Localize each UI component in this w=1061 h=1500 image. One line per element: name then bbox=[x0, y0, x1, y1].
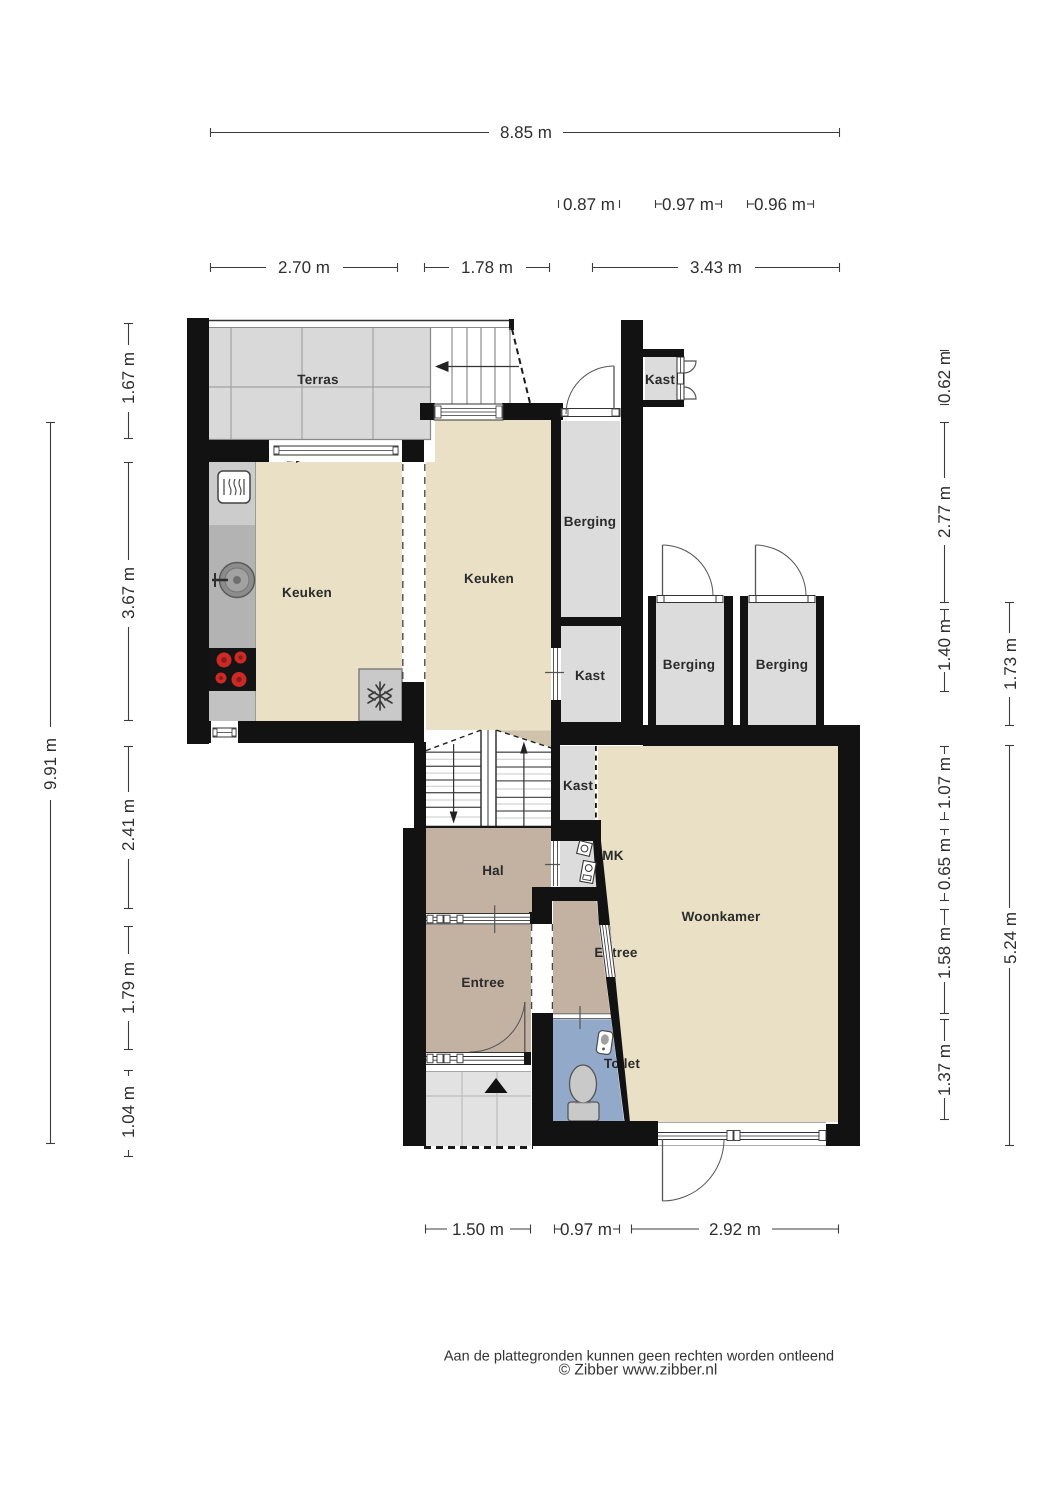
svg-text:Kast: Kast bbox=[575, 668, 605, 683]
svg-text:0.65 m: 0.65 m bbox=[935, 838, 954, 890]
svg-text:1.04 m: 1.04 m bbox=[119, 1086, 138, 1138]
svg-text:1.79 m: 1.79 m bbox=[119, 962, 138, 1014]
svg-text:5.24 m: 5.24 m bbox=[1001, 912, 1020, 964]
svg-text:2.70 m: 2.70 m bbox=[278, 258, 330, 277]
svg-text:0.96 m: 0.96 m bbox=[754, 195, 806, 214]
svg-text:1.50 m: 1.50 m bbox=[452, 1220, 504, 1239]
svg-text:0.87 m: 0.87 m bbox=[563, 195, 615, 214]
svg-text:1.37 m: 1.37 m bbox=[935, 1044, 954, 1096]
svg-text:1.78 m: 1.78 m bbox=[461, 258, 513, 277]
svg-text:Keuken: Keuken bbox=[464, 571, 514, 586]
svg-text:Woonkamer: Woonkamer bbox=[682, 909, 761, 924]
svg-text:1.58 m: 1.58 m bbox=[935, 927, 954, 979]
svg-text:2.92 m: 2.92 m bbox=[709, 1220, 761, 1239]
svg-text:2.77 m: 2.77 m bbox=[935, 486, 954, 538]
svg-text:3.67 m: 3.67 m bbox=[119, 567, 138, 619]
svg-text:1.73 m: 1.73 m bbox=[1001, 638, 1020, 690]
svg-text:Berging: Berging bbox=[663, 657, 715, 672]
svg-text:3.43 m: 3.43 m bbox=[690, 258, 742, 277]
svg-text:Entree: Entree bbox=[594, 945, 638, 960]
svg-text:1.07 m: 1.07 m bbox=[935, 757, 954, 809]
svg-text:Terras: Terras bbox=[297, 372, 338, 387]
svg-text:Kast: Kast bbox=[563, 778, 593, 793]
svg-text:9.91 m: 9.91 m bbox=[41, 738, 60, 790]
svg-text:Entree: Entree bbox=[461, 975, 505, 990]
svg-text:0.97 m: 0.97 m bbox=[662, 195, 714, 214]
svg-text:Hal: Hal bbox=[482, 863, 504, 878]
svg-text:0.97 m: 0.97 m bbox=[560, 1220, 612, 1239]
svg-text:Berging: Berging bbox=[756, 657, 808, 672]
svg-text:MK: MK bbox=[602, 848, 623, 863]
svg-text:1.40 m: 1.40 m bbox=[935, 619, 954, 671]
svg-text:8.85 m: 8.85 m bbox=[500, 123, 552, 142]
svg-text:Kast: Kast bbox=[645, 372, 675, 387]
svg-text:1.67 m: 1.67 m bbox=[119, 352, 138, 404]
svg-text:© Zibber www.zibber.nl: © Zibber www.zibber.nl bbox=[559, 1362, 718, 1379]
svg-text:2.41 m: 2.41 m bbox=[119, 799, 138, 851]
svg-text:Berging: Berging bbox=[564, 514, 616, 529]
svg-text:0.62 m: 0.62 m bbox=[935, 351, 954, 403]
svg-text:Keuken: Keuken bbox=[282, 585, 332, 600]
